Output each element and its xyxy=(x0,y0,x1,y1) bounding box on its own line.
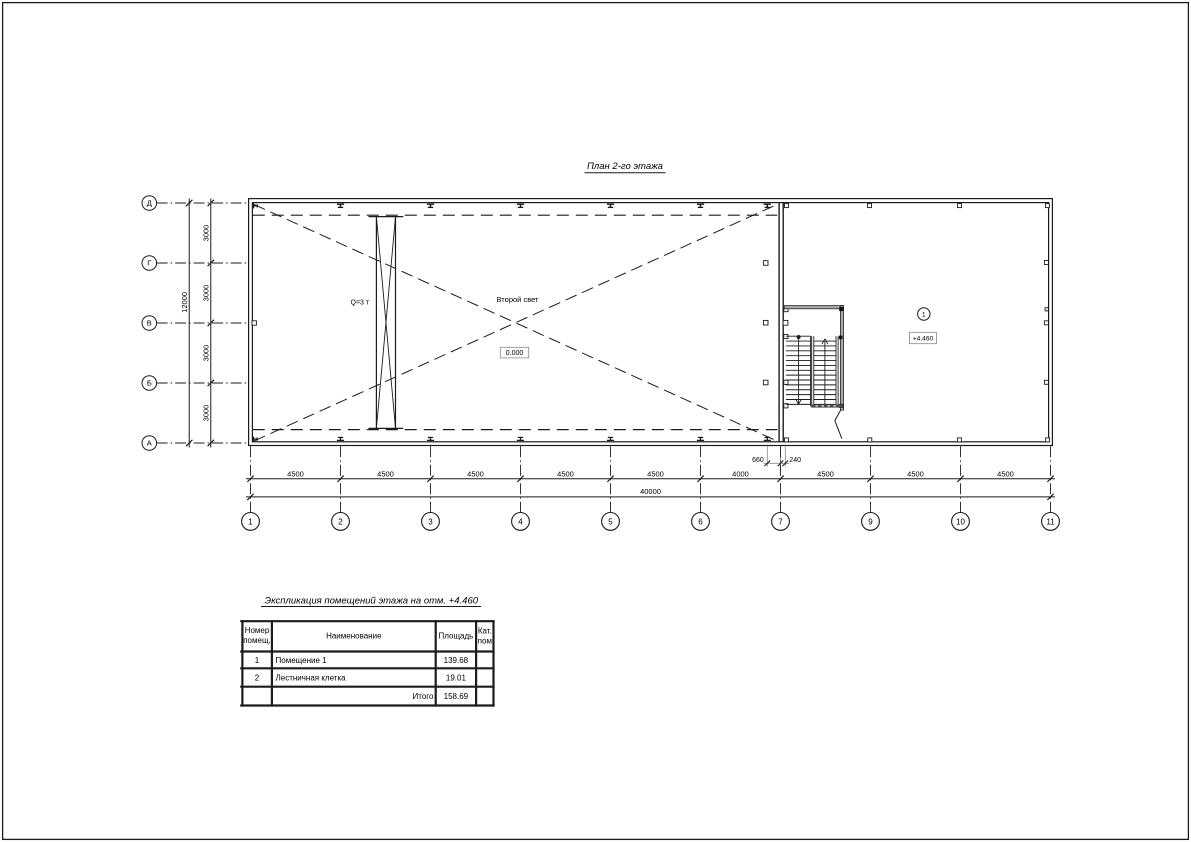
svg-text:4500: 4500 xyxy=(467,469,484,478)
svg-text:5: 5 xyxy=(608,517,613,526)
svg-text:Лестничная клетка: Лестничная клетка xyxy=(276,673,347,682)
svg-text:Б: Б xyxy=(147,379,152,388)
svg-text:помещ.: помещ. xyxy=(243,636,271,645)
svg-text:9: 9 xyxy=(868,517,873,526)
svg-text:4500: 4500 xyxy=(817,469,834,478)
svg-text:19.01: 19.01 xyxy=(446,673,467,682)
svg-text:Номер: Номер xyxy=(245,626,270,635)
svg-text:Экспликация помещений этажа на: Экспликация помещений этажа на отм. +4.4… xyxy=(265,595,479,606)
svg-text:4500: 4500 xyxy=(997,469,1014,478)
svg-text:10: 10 xyxy=(956,517,965,526)
svg-text:3000: 3000 xyxy=(201,285,210,302)
svg-text:6: 6 xyxy=(698,517,703,526)
svg-text:+4.460: +4.460 xyxy=(913,336,934,343)
svg-text:Q=3 т: Q=3 т xyxy=(351,299,370,306)
svg-text:0.000: 0.000 xyxy=(506,350,524,357)
svg-text:4500: 4500 xyxy=(377,469,394,478)
svg-text:1: 1 xyxy=(248,517,253,526)
svg-text:В: В xyxy=(147,319,152,328)
svg-text:139.68: 139.68 xyxy=(444,656,469,665)
svg-text:Кат.: Кат. xyxy=(478,626,492,635)
svg-text:2: 2 xyxy=(338,517,343,526)
svg-text:А: А xyxy=(147,439,152,448)
svg-text:Помещение 1: Помещение 1 xyxy=(276,656,328,665)
svg-text:4500: 4500 xyxy=(557,469,574,478)
svg-text:40000: 40000 xyxy=(640,487,661,496)
svg-text:4500: 4500 xyxy=(907,469,924,478)
svg-text:Г: Г xyxy=(147,259,151,268)
svg-text:План 2-го этажа: План 2-го этажа xyxy=(587,161,663,172)
svg-text:Итого: Итого xyxy=(413,692,435,701)
svg-text:Д: Д xyxy=(147,199,152,208)
svg-text:3: 3 xyxy=(428,517,433,526)
svg-text:1: 1 xyxy=(922,312,926,319)
svg-text:11: 11 xyxy=(1046,517,1055,526)
svg-text:Наименование: Наименование xyxy=(326,632,382,641)
svg-text:660: 660 xyxy=(752,457,764,464)
svg-text:3000: 3000 xyxy=(201,345,210,362)
svg-text:Второй свет: Второй свет xyxy=(497,295,539,304)
svg-text:240: 240 xyxy=(789,457,801,464)
svg-text:158.69: 158.69 xyxy=(444,692,469,701)
svg-text:7: 7 xyxy=(778,517,783,526)
svg-text:2: 2 xyxy=(255,673,260,682)
svg-text:Площадь: Площадь xyxy=(438,632,473,641)
svg-text:4: 4 xyxy=(518,517,523,526)
svg-text:пом: пом xyxy=(478,636,492,645)
svg-text:1: 1 xyxy=(255,656,260,665)
svg-text:4500: 4500 xyxy=(287,469,304,478)
svg-text:12000: 12000 xyxy=(180,292,189,313)
svg-text:4000: 4000 xyxy=(732,469,749,478)
svg-text:3000: 3000 xyxy=(201,225,210,242)
svg-text:4500: 4500 xyxy=(647,469,664,478)
svg-text:3000: 3000 xyxy=(201,405,210,422)
